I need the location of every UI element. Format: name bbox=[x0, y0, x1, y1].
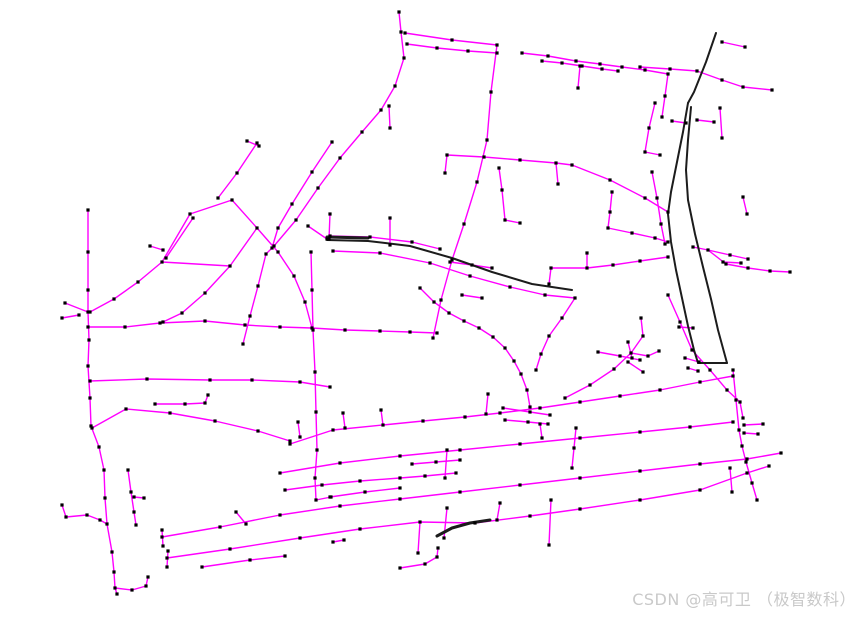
pipe-link[interactable] bbox=[389, 106, 390, 128]
junction-node[interactable] bbox=[756, 432, 759, 435]
junction-node[interactable] bbox=[203, 319, 206, 322]
pipe-link[interactable] bbox=[447, 155, 572, 165]
junction-node[interactable] bbox=[85, 513, 88, 516]
pipe-link[interactable] bbox=[744, 433, 758, 434]
junction-node[interactable] bbox=[498, 411, 501, 414]
junction-node[interactable] bbox=[228, 547, 231, 550]
junction-node[interactable] bbox=[630, 231, 633, 234]
junction-node[interactable] bbox=[435, 46, 438, 49]
pipe-link[interactable] bbox=[400, 548, 438, 568]
junction-node[interactable] bbox=[767, 464, 770, 467]
junction-node[interactable] bbox=[288, 439, 291, 442]
junction-node[interactable] bbox=[696, 369, 699, 372]
junction-node[interactable] bbox=[360, 130, 363, 133]
junction-node[interactable] bbox=[298, 380, 301, 383]
junction-node[interactable] bbox=[208, 378, 211, 381]
junction-node[interactable] bbox=[528, 514, 531, 517]
pipe-link[interactable] bbox=[167, 466, 769, 558]
junction-node[interactable] bbox=[146, 575, 149, 578]
junction-node[interactable] bbox=[454, 471, 457, 474]
junction-node[interactable] bbox=[626, 360, 629, 363]
junction-node[interactable] bbox=[518, 483, 521, 486]
junction-node[interactable] bbox=[731, 420, 734, 423]
junction-node[interactable] bbox=[423, 562, 426, 565]
pipe-link[interactable] bbox=[298, 422, 300, 437]
junction-node[interactable] bbox=[276, 226, 279, 229]
pipe-link[interactable] bbox=[243, 32, 404, 344]
junction-node[interactable] bbox=[770, 88, 773, 91]
pipe-link[interactable] bbox=[631, 351, 659, 356]
junction-node[interactable] bbox=[309, 250, 312, 253]
junction-node[interactable] bbox=[88, 379, 91, 382]
junction-node[interactable] bbox=[658, 153, 661, 156]
junction-node[interactable] bbox=[706, 248, 709, 251]
junction-node[interactable] bbox=[191, 216, 194, 219]
junction-node[interactable] bbox=[482, 155, 485, 158]
road-line[interactable] bbox=[688, 33, 716, 103]
junction-node[interactable] bbox=[677, 325, 680, 328]
junction-node[interactable] bbox=[512, 359, 515, 362]
junction-node[interactable] bbox=[490, 266, 493, 269]
junction-node[interactable] bbox=[745, 457, 748, 460]
junction-node[interactable] bbox=[547, 543, 550, 546]
junction-node[interactable] bbox=[343, 328, 346, 331]
junction-node[interactable] bbox=[126, 468, 129, 471]
junction-node[interactable] bbox=[546, 422, 549, 425]
junction-node[interactable] bbox=[310, 170, 313, 173]
junction-node[interactable] bbox=[102, 468, 105, 471]
pipe-link[interactable] bbox=[668, 295, 743, 418]
pipe-link[interactable] bbox=[608, 228, 668, 242]
junction-node[interactable] bbox=[241, 342, 244, 345]
junction-node[interactable] bbox=[546, 54, 549, 57]
junction-node[interactable] bbox=[578, 507, 581, 510]
junction-node[interactable] bbox=[245, 139, 248, 142]
junction-node[interactable] bbox=[538, 422, 541, 425]
junction-node[interactable] bbox=[228, 264, 231, 267]
junction-node[interactable] bbox=[618, 354, 621, 357]
pipe-link[interactable] bbox=[162, 453, 781, 537]
junction-node[interactable] bbox=[742, 423, 745, 426]
junction-node[interactable] bbox=[629, 351, 632, 354]
junction-node[interactable] bbox=[678, 320, 681, 323]
junction-node[interactable] bbox=[428, 261, 431, 264]
pipe-link[interactable] bbox=[730, 468, 732, 492]
junction-node[interactable] bbox=[443, 476, 446, 479]
pipe-link[interactable] bbox=[628, 362, 643, 372]
junction-node[interactable] bbox=[445, 153, 448, 156]
junction-node[interactable] bbox=[663, 94, 666, 97]
junction-node[interactable] bbox=[612, 367, 615, 370]
junction-node[interactable] bbox=[598, 62, 601, 65]
junction-node[interactable] bbox=[443, 171, 446, 174]
junction-node[interactable] bbox=[744, 460, 747, 463]
junction-node[interactable] bbox=[278, 325, 281, 328]
pipe-link[interactable] bbox=[578, 66, 580, 88]
junction-node[interactable] bbox=[731, 374, 734, 377]
junction-node[interactable] bbox=[60, 503, 63, 506]
junction-node[interactable] bbox=[320, 483, 323, 486]
pipe-link[interactable] bbox=[162, 200, 257, 266]
junction-node[interactable] bbox=[165, 565, 168, 568]
junction-node[interactable] bbox=[554, 161, 557, 164]
junction-node[interactable] bbox=[761, 422, 764, 425]
junction-node[interactable] bbox=[130, 588, 133, 591]
junction-node[interactable] bbox=[458, 448, 461, 451]
pipe-link[interactable] bbox=[722, 42, 745, 47]
pipe-link[interactable] bbox=[744, 424, 763, 425]
junction-node[interactable] bbox=[712, 120, 715, 123]
junction-node[interactable] bbox=[331, 249, 334, 252]
junction-node[interactable] bbox=[328, 495, 331, 498]
junction-node[interactable] bbox=[650, 170, 653, 173]
pipe-link[interactable] bbox=[540, 424, 542, 438]
junction-node[interactable] bbox=[328, 385, 331, 388]
junction-node[interactable] bbox=[475, 180, 478, 183]
junction-node[interactable] bbox=[574, 59, 577, 62]
junction-node[interactable] bbox=[296, 420, 299, 423]
junction-node[interactable] bbox=[292, 274, 295, 277]
junction-node[interactable] bbox=[611, 263, 614, 266]
junction-node[interactable] bbox=[342, 538, 345, 541]
junction-node[interactable] bbox=[698, 380, 701, 383]
junction-node[interactable] bbox=[737, 428, 740, 431]
pipe-link[interactable] bbox=[92, 409, 290, 441]
junction-node[interactable] bbox=[134, 523, 137, 526]
junction-node[interactable] bbox=[574, 426, 577, 429]
pipe-link[interactable] bbox=[433, 45, 497, 338]
junction-node[interactable] bbox=[378, 329, 381, 332]
junction-node[interactable] bbox=[435, 555, 438, 558]
junction-node[interactable] bbox=[618, 394, 621, 397]
junction-node[interactable] bbox=[325, 237, 328, 240]
junction-node[interactable] bbox=[257, 144, 260, 147]
junction-node[interactable] bbox=[779, 451, 782, 454]
junction-node[interactable] bbox=[331, 428, 334, 431]
junction-node[interactable] bbox=[450, 38, 453, 41]
junction-node[interactable] bbox=[547, 282, 550, 285]
junction-node[interactable] bbox=[298, 435, 301, 438]
junction-node[interactable] bbox=[638, 498, 641, 501]
pipe-link[interactable] bbox=[62, 505, 66, 517]
junction-node[interactable] bbox=[630, 356, 633, 359]
junction-node[interactable] bbox=[98, 518, 101, 521]
junction-node[interactable] bbox=[458, 490, 461, 493]
junction-node[interactable] bbox=[691, 245, 694, 248]
pipe-link[interactable] bbox=[308, 226, 327, 239]
junction-node[interactable] bbox=[725, 388, 728, 391]
junction-node[interactable] bbox=[338, 504, 341, 507]
pipe-link[interactable] bbox=[486, 394, 488, 414]
junction-node[interactable] bbox=[708, 368, 711, 371]
junction-node[interactable] bbox=[718, 106, 721, 109]
pipe-link[interactable] bbox=[505, 220, 520, 223]
junction-node[interactable] bbox=[418, 520, 421, 523]
junction-node[interactable] bbox=[408, 330, 411, 333]
junction-node[interactable] bbox=[659, 222, 662, 225]
junction-node[interactable] bbox=[641, 334, 644, 337]
junction-node[interactable] bbox=[387, 104, 390, 107]
junction-node[interactable] bbox=[698, 488, 701, 491]
junction-node[interactable] bbox=[497, 166, 500, 169]
junction-node[interactable] bbox=[503, 218, 506, 221]
pipe-link[interactable] bbox=[399, 12, 401, 32]
junction-node[interactable] bbox=[788, 270, 791, 273]
junction-node[interactable] bbox=[86, 310, 89, 313]
junction-node[interactable] bbox=[658, 388, 661, 391]
junction-node[interactable] bbox=[86, 364, 89, 367]
junction-node[interactable] bbox=[495, 43, 498, 46]
pipe-link[interactable] bbox=[257, 228, 312, 328]
junction-node[interactable] bbox=[466, 49, 469, 52]
junction-node[interactable] bbox=[358, 479, 361, 482]
junction-node[interactable] bbox=[547, 334, 550, 337]
pipe-link[interactable] bbox=[645, 152, 660, 155]
junction-node[interactable] bbox=[576, 86, 579, 89]
pipe-link[interactable] bbox=[551, 257, 668, 268]
junction-node[interactable] bbox=[331, 540, 334, 543]
junction-node[interactable] bbox=[200, 565, 203, 568]
junction-node[interactable] bbox=[393, 84, 396, 87]
junction-node[interactable] bbox=[463, 415, 466, 418]
junction-node[interactable] bbox=[563, 396, 566, 399]
junction-node[interactable] bbox=[161, 544, 164, 547]
junction-node[interactable] bbox=[313, 370, 316, 373]
junction-node[interactable] bbox=[647, 126, 650, 129]
junction-node[interactable] bbox=[500, 188, 503, 191]
junction-node[interactable] bbox=[572, 446, 575, 449]
junction-node[interactable] bbox=[436, 546, 439, 549]
junction-node[interactable] bbox=[548, 413, 551, 416]
junction-node[interactable] bbox=[768, 269, 771, 272]
junction-node[interactable] bbox=[643, 150, 646, 153]
pipe-link[interactable] bbox=[218, 143, 257, 198]
road-line[interactable] bbox=[327, 240, 572, 290]
junction-node[interactable] bbox=[489, 90, 492, 93]
junction-node[interactable] bbox=[698, 462, 701, 465]
pipe-link[interactable] bbox=[549, 268, 551, 284]
junction-node[interactable] bbox=[608, 210, 611, 213]
junction-node[interactable] bbox=[520, 51, 523, 54]
junction-node[interactable] bbox=[573, 296, 576, 299]
junction-node[interactable] bbox=[188, 212, 191, 215]
junction-node[interactable] bbox=[560, 61, 563, 64]
junction-node[interactable] bbox=[666, 210, 669, 213]
pipe-link[interactable] bbox=[381, 410, 383, 425]
junction-node[interactable] bbox=[142, 496, 145, 499]
junction-node[interactable] bbox=[431, 336, 434, 339]
junction-node[interactable] bbox=[445, 506, 448, 509]
junction-node[interactable] bbox=[216, 196, 219, 199]
pipe-link[interactable] bbox=[407, 44, 497, 53]
junction-node[interactable] bbox=[235, 171, 238, 174]
junction-node[interactable] bbox=[458, 458, 461, 461]
junction-node[interactable] bbox=[684, 121, 687, 124]
junction-node[interactable] bbox=[86, 288, 89, 291]
junction-node[interactable] bbox=[518, 221, 521, 224]
pipe-link[interactable] bbox=[652, 172, 665, 244]
pipe-link[interactable] bbox=[497, 503, 500, 520]
junction-node[interactable] bbox=[423, 474, 426, 477]
pipe-link[interactable] bbox=[155, 403, 205, 404]
junction-node[interactable] bbox=[539, 352, 542, 355]
junction-node[interactable] bbox=[638, 430, 641, 433]
junction-node[interactable] bbox=[434, 460, 437, 463]
junction-node[interactable] bbox=[129, 490, 132, 493]
junction-node[interactable] bbox=[115, 592, 118, 595]
junction-node[interactable] bbox=[438, 247, 441, 250]
junction-node[interactable] bbox=[616, 69, 619, 72]
junction-node[interactable] bbox=[77, 313, 80, 316]
junction-node[interactable] bbox=[683, 356, 686, 359]
junction-node[interactable] bbox=[60, 316, 63, 319]
junction-node[interactable] bbox=[410, 240, 413, 243]
junction-node[interactable] bbox=[646, 354, 649, 357]
junction-node[interactable] bbox=[526, 420, 529, 423]
junction-node[interactable] bbox=[518, 158, 521, 161]
junction-node[interactable] bbox=[379, 108, 382, 111]
pipe-link[interactable] bbox=[743, 197, 747, 214]
junction-node[interactable] bbox=[585, 251, 588, 254]
junction-node[interactable] bbox=[218, 525, 221, 528]
pipe-link[interactable] bbox=[549, 500, 551, 545]
pipe-link[interactable] bbox=[445, 155, 447, 173]
junction-node[interactable] bbox=[691, 326, 694, 329]
junction-node[interactable] bbox=[660, 115, 663, 118]
junction-node[interactable] bbox=[739, 261, 742, 264]
junction-node[interactable] bbox=[738, 400, 741, 403]
junction-node[interactable] bbox=[86, 325, 89, 328]
junction-node[interactable] bbox=[398, 497, 401, 500]
junction-node[interactable] bbox=[402, 56, 405, 59]
junction-node[interactable] bbox=[264, 252, 267, 255]
junction-node[interactable] bbox=[378, 251, 381, 254]
junction-node[interactable] bbox=[731, 368, 734, 371]
junction-node[interactable] bbox=[398, 566, 401, 569]
junction-node[interactable] bbox=[503, 346, 506, 349]
pipe-link[interactable] bbox=[418, 522, 420, 553]
junction-node[interactable] bbox=[596, 350, 599, 353]
junction-node[interactable] bbox=[740, 444, 743, 447]
pipe-link[interactable] bbox=[608, 192, 612, 228]
junction-node[interactable] bbox=[112, 297, 115, 300]
junction-node[interactable] bbox=[746, 266, 749, 269]
junction-node[interactable] bbox=[399, 30, 402, 33]
pipe-link[interactable] bbox=[720, 108, 722, 138]
junction-node[interactable] bbox=[278, 513, 281, 516]
junction-node[interactable] bbox=[578, 400, 581, 403]
junction-node[interactable] bbox=[410, 462, 413, 465]
junction-node[interactable] bbox=[213, 419, 216, 422]
junction-node[interactable] bbox=[165, 556, 168, 559]
junction-node[interactable] bbox=[113, 586, 116, 589]
junction-node[interactable] bbox=[724, 262, 727, 265]
junction-node[interactable] bbox=[666, 293, 669, 296]
junction-node[interactable] bbox=[160, 535, 163, 538]
junction-node[interactable] bbox=[643, 68, 646, 71]
junction-node[interactable] bbox=[653, 236, 656, 239]
junction-node[interactable] bbox=[86, 250, 89, 253]
junction-node[interactable] bbox=[338, 156, 341, 159]
pipe-link[interactable] bbox=[150, 246, 163, 250]
junction-node[interactable] bbox=[495, 51, 498, 54]
junction-node[interactable] bbox=[588, 383, 591, 386]
junction-node[interactable] bbox=[278, 471, 281, 474]
junction-node[interactable] bbox=[294, 218, 297, 221]
junction-node[interactable] bbox=[741, 416, 744, 419]
pipe-link[interactable] bbox=[697, 120, 714, 122]
junction-node[interactable] bbox=[518, 442, 521, 445]
junction-node[interactable] bbox=[136, 280, 139, 283]
junction-node[interactable] bbox=[626, 340, 629, 343]
junction-node[interactable] bbox=[64, 515, 67, 518]
junction-node[interactable] bbox=[105, 522, 108, 525]
junction-node[interactable] bbox=[720, 136, 723, 139]
junction-node[interactable] bbox=[503, 418, 506, 421]
junction-node[interactable] bbox=[416, 551, 419, 554]
junction-node[interactable] bbox=[303, 300, 306, 303]
junction-node[interactable] bbox=[398, 486, 401, 489]
junction-node[interactable] bbox=[745, 212, 748, 215]
junction-node[interactable] bbox=[124, 407, 127, 410]
pipe-link[interactable] bbox=[679, 327, 693, 328]
junction-node[interactable] bbox=[695, 69, 698, 72]
junction-node[interactable] bbox=[641, 370, 644, 373]
junction-node[interactable] bbox=[460, 293, 463, 296]
junction-node[interactable] bbox=[248, 314, 251, 317]
junction-node[interactable] bbox=[549, 266, 552, 269]
junction-node[interactable] bbox=[540, 59, 543, 62]
pipe-link[interactable] bbox=[90, 262, 162, 312]
junction-node[interactable] bbox=[153, 402, 156, 405]
junction-node[interactable] bbox=[730, 490, 733, 493]
junction-node[interactable] bbox=[643, 196, 646, 199]
junction-node[interactable] bbox=[600, 67, 603, 70]
junction-node[interactable] bbox=[160, 528, 163, 531]
junction-node[interactable] bbox=[110, 550, 113, 553]
pipe-link[interactable] bbox=[536, 298, 575, 370]
junction-node[interactable] bbox=[132, 495, 135, 498]
junction-node[interactable] bbox=[743, 45, 746, 48]
pipe-link[interactable] bbox=[166, 218, 193, 258]
pipe-link[interactable] bbox=[556, 163, 558, 184]
junction-node[interactable] bbox=[256, 284, 259, 287]
junction-node[interactable] bbox=[578, 64, 581, 67]
junction-node[interactable] bbox=[313, 476, 316, 479]
pipe-link[interactable] bbox=[733, 370, 757, 500]
pipe-link[interactable] bbox=[285, 473, 456, 490]
junction-node[interactable] bbox=[97, 445, 100, 448]
junction-node[interactable] bbox=[486, 392, 489, 395]
junction-node[interactable] bbox=[697, 360, 700, 363]
junction-node[interactable] bbox=[447, 311, 450, 314]
junction-node[interactable] bbox=[87, 338, 90, 341]
junction-node[interactable] bbox=[728, 253, 731, 256]
junction-node[interactable] bbox=[484, 412, 487, 415]
junction-node[interactable] bbox=[750, 481, 753, 484]
junction-node[interactable] bbox=[203, 401, 206, 404]
junction-node[interactable] bbox=[290, 202, 293, 205]
junction-node[interactable] bbox=[316, 186, 319, 189]
road-line[interactable] bbox=[686, 107, 727, 363]
junction-node[interactable] bbox=[462, 319, 465, 322]
pipe-link[interactable] bbox=[565, 336, 643, 398]
junction-node[interactable] bbox=[243, 323, 246, 326]
junction-node[interactable] bbox=[540, 436, 543, 439]
junction-node[interactable] bbox=[477, 326, 480, 329]
junction-node[interactable] bbox=[250, 378, 253, 381]
pipe-link[interactable] bbox=[62, 315, 79, 318]
